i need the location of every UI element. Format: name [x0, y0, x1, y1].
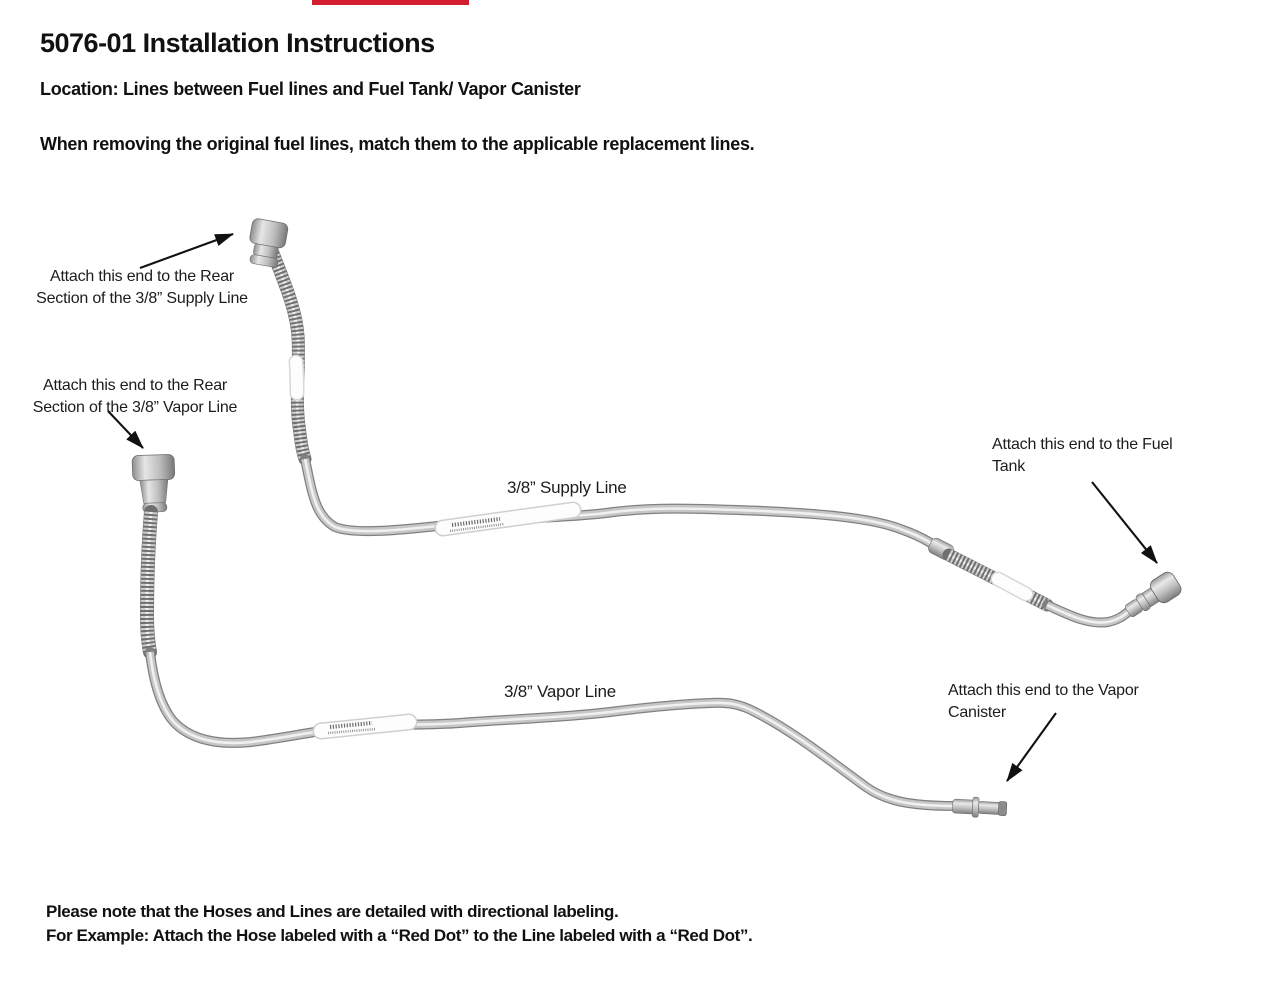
note-fuel-tank-line1: Attach this end to the Fuel [992, 436, 1173, 453]
arrow-to-fuel-tank-end [1092, 482, 1157, 563]
note-supply-rear-line2: Section of the 3/8” Supply Line [36, 290, 248, 307]
vapor-canister-fitting [952, 796, 1007, 819]
supply-braided-hose-front [271, 248, 305, 459]
fuel-lines-photo [0, 0, 1280, 989]
fuel-tank-fitting [1121, 570, 1184, 623]
note-vapor-canister: Attach this end to the Vapor Canister [948, 680, 1163, 724]
note-vapor-rear-line1: Attach this end to the Rear [43, 377, 227, 394]
note-supply-rear-line1: Attach this end to the Rear [50, 268, 234, 285]
arrow-to-supply-rear-end [140, 234, 233, 268]
note-vapor-rear: Attach this end to the Rear Section of t… [10, 375, 260, 419]
supply-tank-end-tube [1047, 605, 1128, 623]
footer-note: Please note that the Hoses and Lines are… [46, 900, 752, 948]
vapor-label-sleeve [321, 722, 409, 733]
note-vapor-canister-line2: Canister [948, 704, 1006, 721]
supply-braided-hose-rear [949, 555, 1047, 605]
vapor-braided-hose [147, 512, 151, 652]
vapor-tube [150, 652, 955, 806]
footer-line1: Please note that the Hoses and Lines are… [46, 902, 618, 921]
supply-tube [305, 459, 949, 555]
vapor-line-label: 3/8” Vapor Line [504, 682, 616, 702]
footer-line2: For Example: Attach the Hose labeled wit… [46, 926, 752, 945]
supply-line-drawing [245, 218, 1183, 623]
note-supply-rear: Attach this end to the Rear Section of t… [18, 266, 266, 310]
supply-label-sleeve [443, 510, 573, 531]
supply-line-label: 3/8” Supply Line [507, 478, 627, 498]
note-vapor-canister-line1: Attach this end to the Vapor [948, 682, 1139, 699]
vapor-front-fitting [132, 454, 176, 512]
note-fuel-tank: Attach this end to the Fuel Tank [992, 434, 1197, 478]
note-vapor-rear-line2: Section of the 3/8” Vapor Line [33, 399, 238, 416]
instruction-sheet: 5076-01 Installation Instructions Locati… [0, 0, 1280, 989]
note-fuel-tank-line2: Tank [992, 458, 1025, 475]
